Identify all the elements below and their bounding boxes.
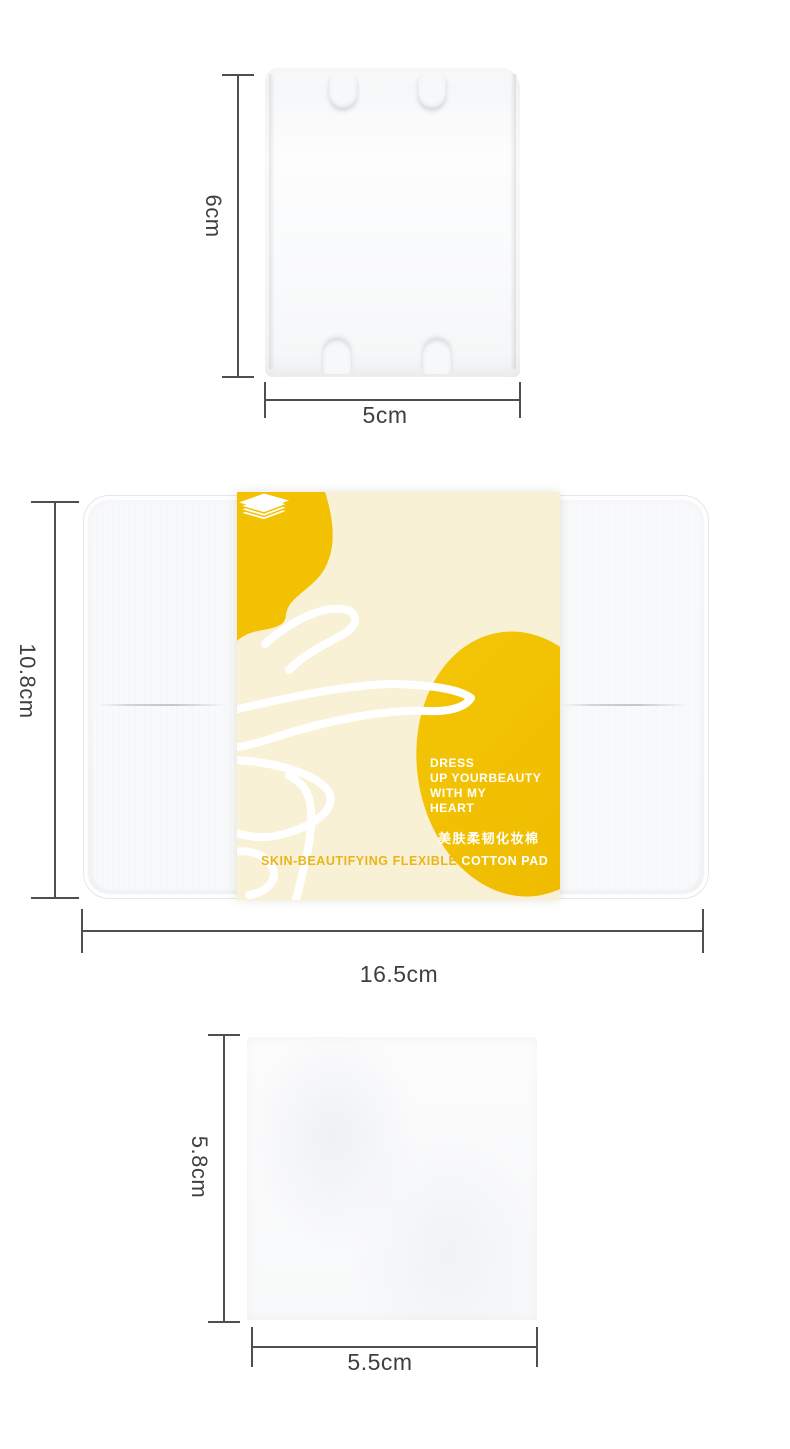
measure-cap: [222, 376, 254, 378]
rect-pad-width-measure-line: [265, 399, 520, 401]
cotton-pad-size-diagram: 6cm 5cm 10.8cm: [0, 0, 790, 1449]
measure-cap: [31, 897, 79, 899]
slogan-line: HEART: [430, 801, 541, 816]
box-pads-stack: [558, 504, 699, 890]
measure-cap: [81, 909, 83, 953]
pad-crease: [269, 74, 276, 369]
slogan-line: DRESS: [430, 756, 541, 771]
en-name-white-part: COTTON PAD: [461, 854, 548, 868]
rect-cotton-pad-photo: [265, 68, 520, 377]
pad-tab: [323, 340, 351, 374]
pad-tab: [329, 76, 357, 108]
slogan-line: WITH MY: [430, 786, 541, 801]
pad-crease: [509, 74, 516, 369]
box-wrapper-label: DRESS UP YOURBEAUTY WITH MY HEART 美肤柔韧化妆…: [237, 492, 560, 900]
pad-tab: [418, 76, 446, 108]
en-name-gold-part: SKIN-BEAUTIFYING FLEXIBLE: [261, 854, 457, 868]
measure-cap: [702, 909, 704, 953]
pad-tab: [423, 340, 451, 374]
measure-cap: [536, 1327, 538, 1367]
box-pads-stack: [93, 504, 239, 890]
measure-cap: [222, 74, 254, 76]
wrapper-product-name-en: SKIN-BEAUTIFYING FLEXIBLECOTTON PAD: [261, 854, 548, 868]
rect-pad-height-measure-line: [237, 75, 239, 377]
square-pad-height-label: 5.8cm: [188, 1136, 210, 1198]
box-width-label: 16.5cm: [360, 963, 438, 986]
pads-seam: [97, 704, 235, 706]
square-pad-height-measure-line: [223, 1035, 225, 1322]
measure-cap: [251, 1327, 253, 1367]
measure-cap: [208, 1321, 240, 1323]
square-pad-width-label: 5.5cm: [347, 1351, 412, 1374]
measure-cap: [31, 501, 79, 503]
measure-cap: [519, 382, 521, 418]
measure-cap: [208, 1034, 240, 1036]
measure-cap: [264, 382, 266, 418]
pad-stack-icon: [237, 492, 291, 520]
box-width-measure-line: [82, 930, 703, 932]
box-height-label: 10.8cm: [16, 643, 38, 718]
square-pad-width-measure-line: [252, 1346, 537, 1348]
box-height-measure-line: [54, 502, 56, 898]
rect-pad-width-label: 5cm: [363, 404, 408, 427]
rect-pad-height-label: 6cm: [202, 194, 224, 237]
wrapper-slogan: DRESS UP YOURBEAUTY WITH MY HEART: [430, 756, 541, 816]
wrapper-product-name-cn: 美肤柔韧化妆棉: [438, 828, 540, 847]
slogan-line: UP YOURBEAUTY: [430, 771, 541, 786]
square-cotton-pad-photo: [247, 1037, 537, 1320]
pads-seam: [562, 704, 695, 706]
